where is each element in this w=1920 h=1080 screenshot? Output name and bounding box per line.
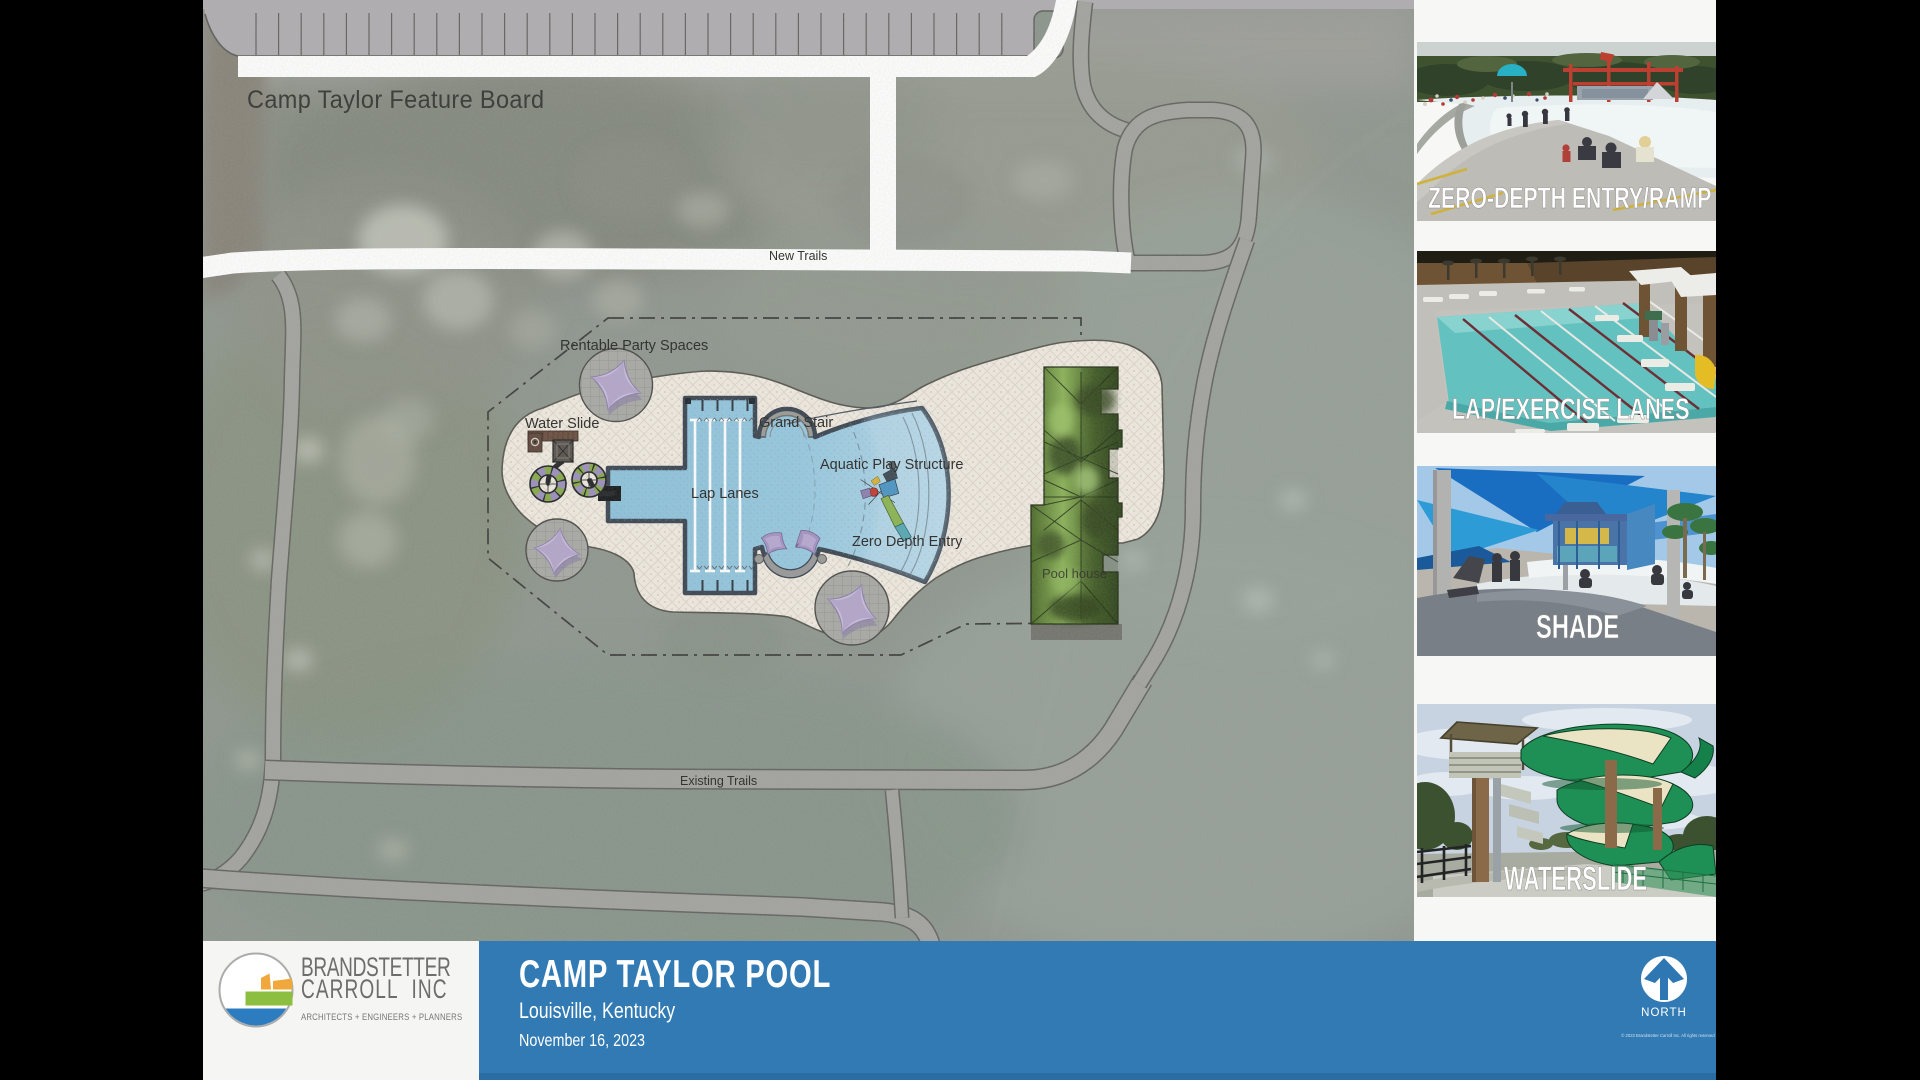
svg-text:SHADE: SHADE	[1536, 609, 1619, 646]
svg-text:ZERO-DEPTH ENTRY/RAMP: ZERO-DEPTH ENTRY/RAMP	[1428, 183, 1711, 215]
svg-text:WATERSLIDE: WATERSLIDE	[1504, 860, 1647, 897]
svg-text:LAP/EXERCISE LANES: LAP/EXERCISE LANES	[1452, 391, 1690, 425]
